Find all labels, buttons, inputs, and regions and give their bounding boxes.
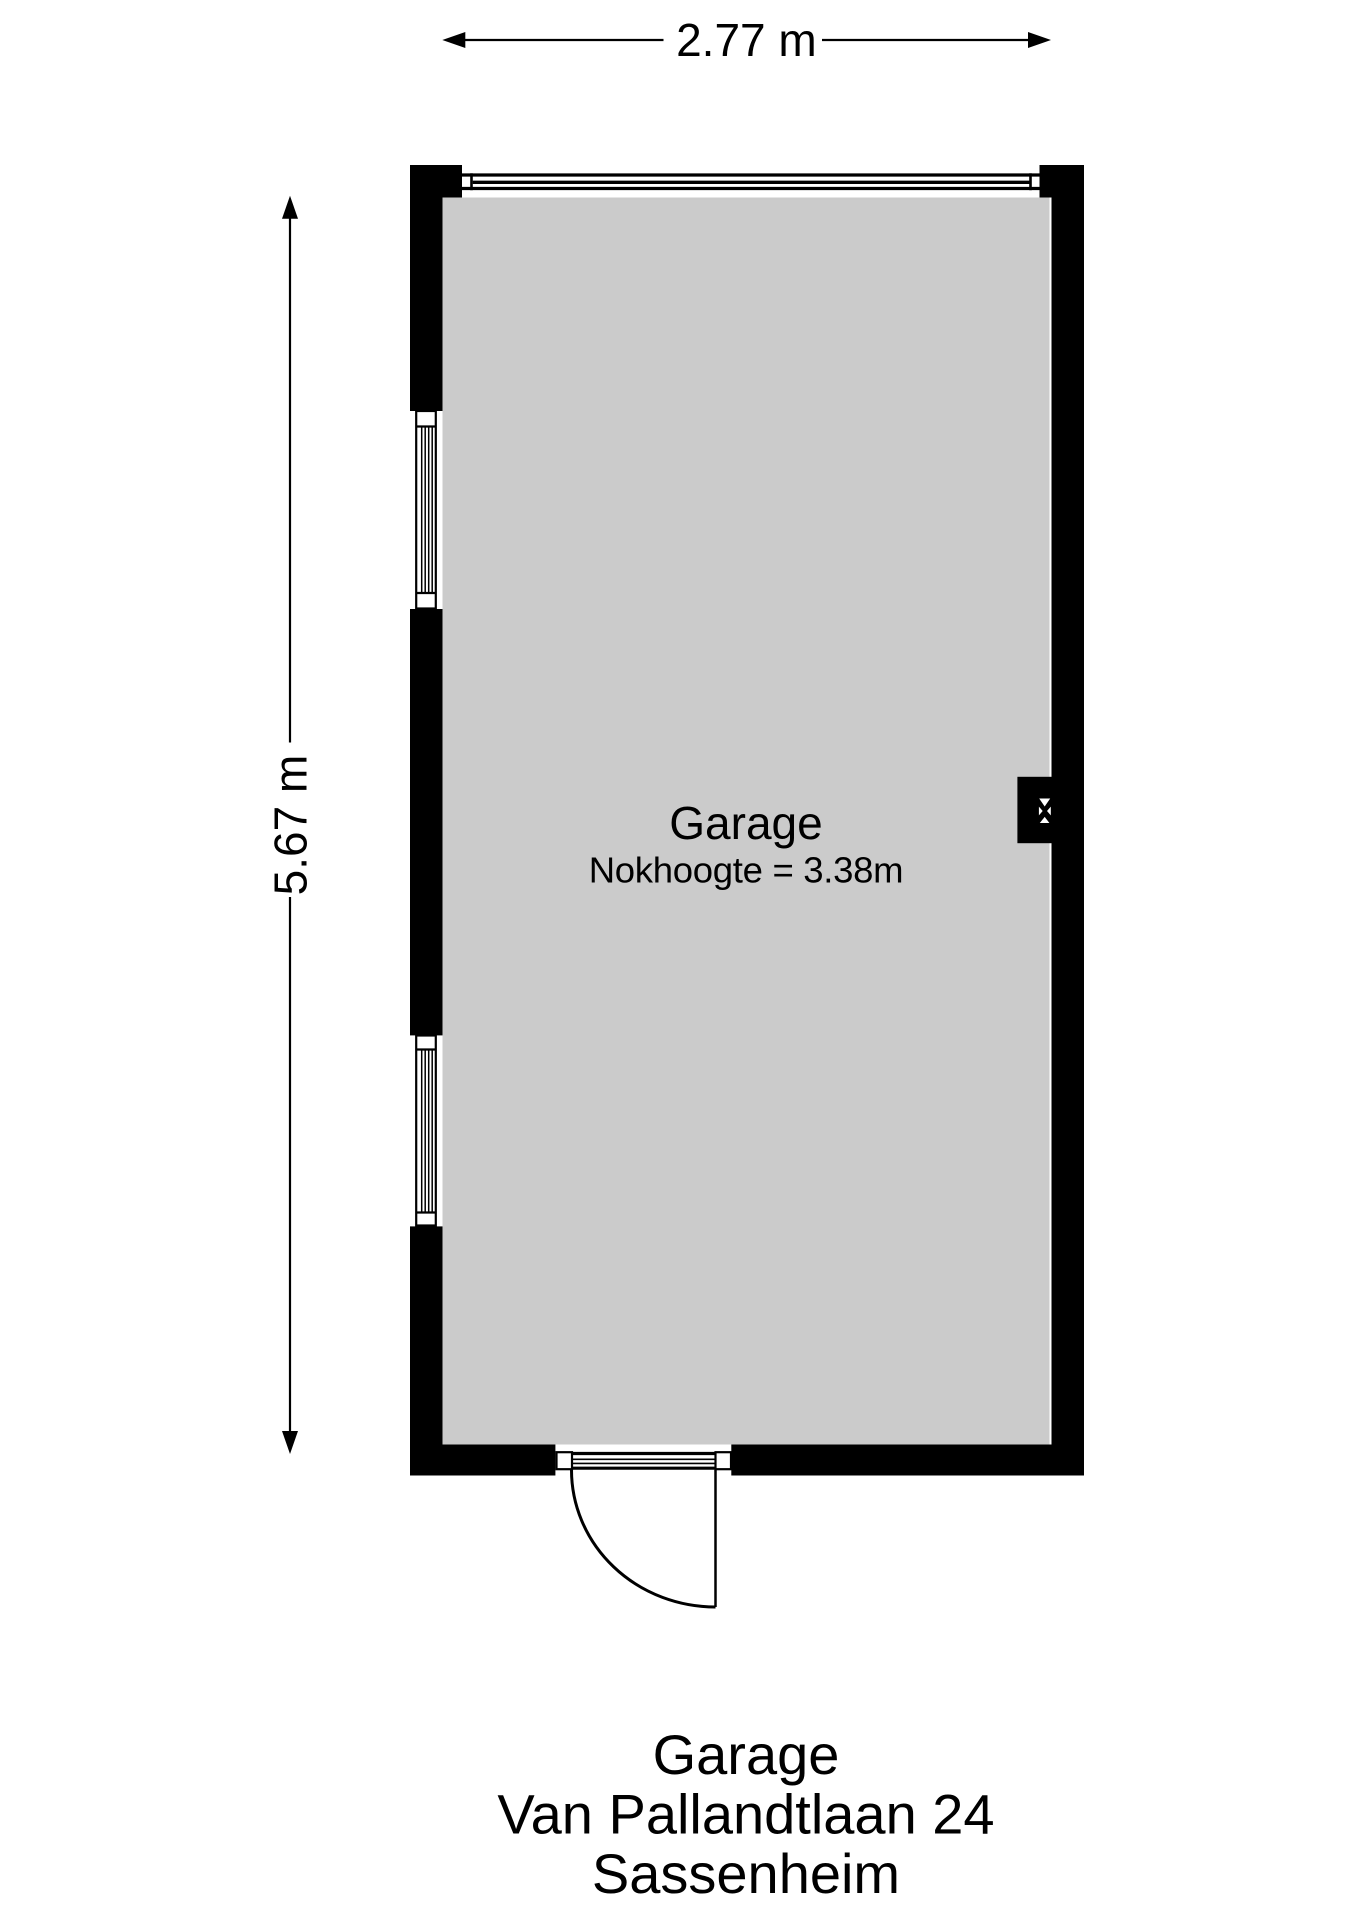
- svg-text:Sassenheim: Sassenheim: [592, 1842, 900, 1905]
- svg-text:5.67 m: 5.67 m: [265, 755, 317, 896]
- svg-text:Garage: Garage: [653, 1723, 840, 1786]
- svg-text:2.77 m: 2.77 m: [676, 14, 817, 66]
- svg-text:Garage: Garage: [669, 797, 822, 849]
- svg-text:Nokhoogte = 3.38m: Nokhoogte = 3.38m: [589, 850, 904, 891]
- svg-text:Van Pallandtlaan 24: Van Pallandtlaan 24: [497, 1783, 994, 1846]
